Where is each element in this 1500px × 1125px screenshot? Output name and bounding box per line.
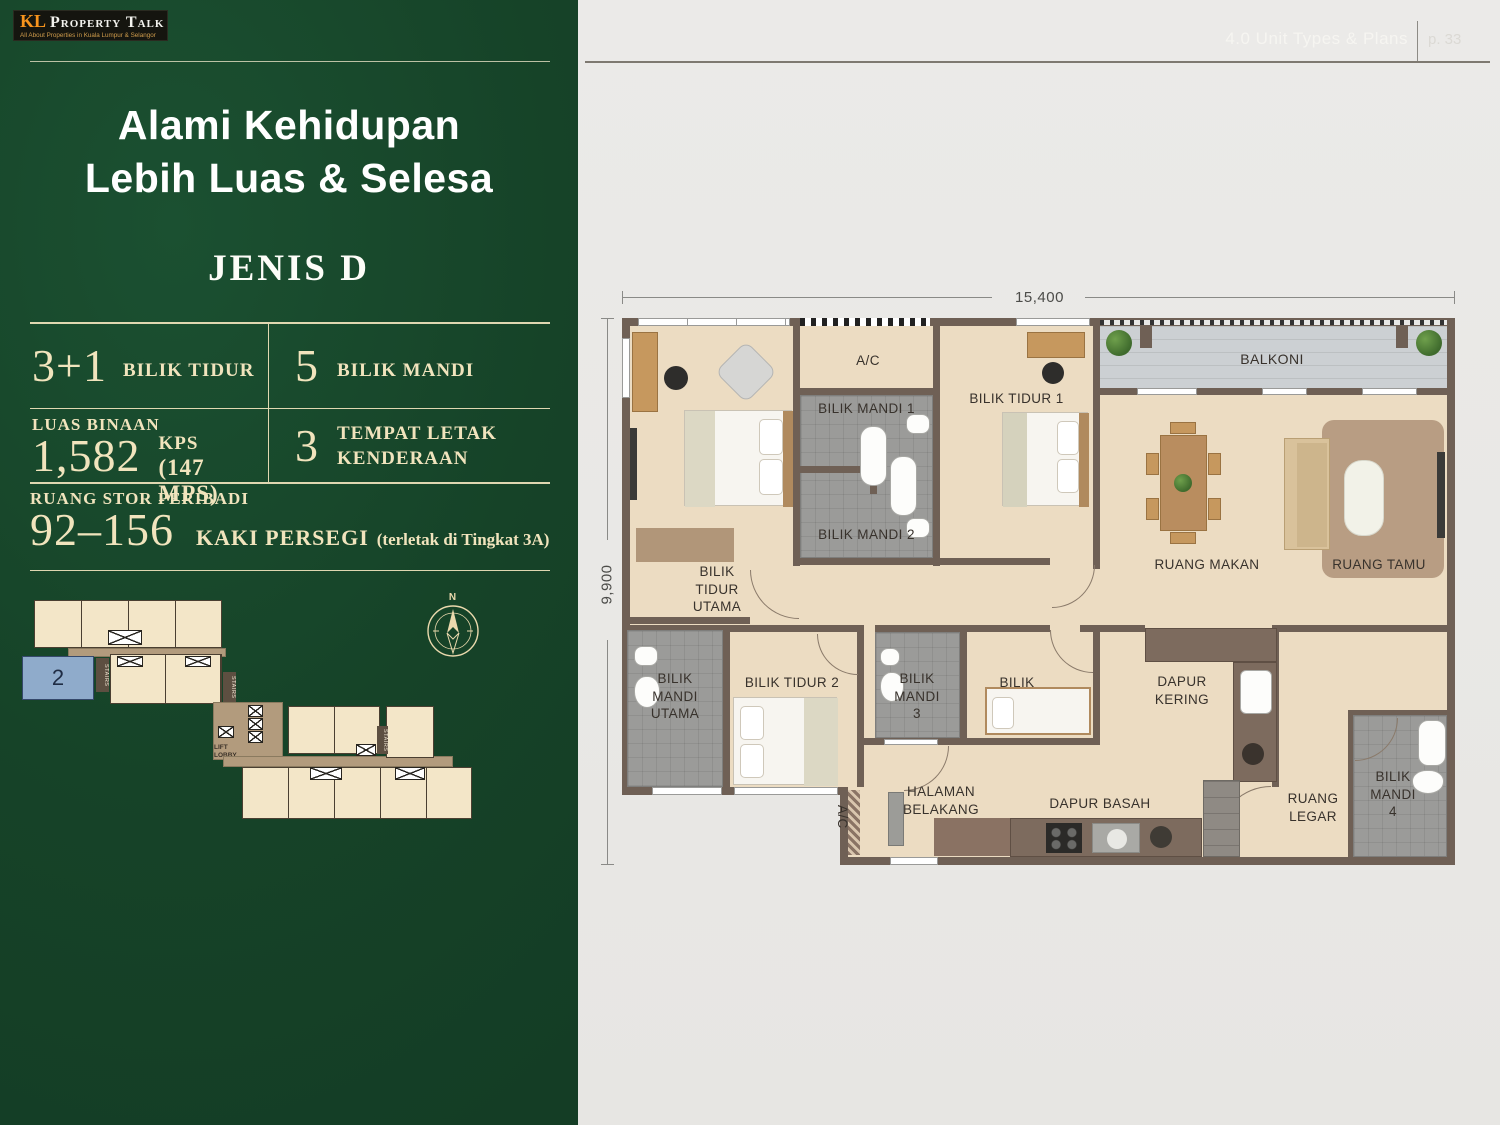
wall bbox=[960, 625, 967, 745]
chair bbox=[1208, 453, 1221, 475]
brand-logo-kl: KL bbox=[20, 11, 46, 31]
floor-plan: BALKONI A/C BILIK MANDI 1 BILIK MANDI 2 … bbox=[622, 318, 1455, 865]
sliding-door bbox=[1137, 388, 1197, 395]
bathrooms-value: 5 bbox=[295, 343, 319, 389]
bathtub bbox=[890, 456, 917, 516]
wall bbox=[793, 326, 800, 566]
brochure-page: KL Property Talk All About Properties in… bbox=[0, 0, 1500, 1125]
room-label-ac-bottom: A/C bbox=[833, 797, 851, 837]
wall bbox=[1277, 625, 1447, 632]
spec-bedrooms: 3+1 BILIK TIDUR bbox=[30, 324, 268, 408]
wall bbox=[630, 617, 750, 624]
lift-shaft-icon bbox=[248, 718, 263, 730]
balcony-column bbox=[1396, 326, 1408, 348]
compass-north-label: N bbox=[424, 592, 482, 603]
window bbox=[734, 787, 838, 795]
spec-built-up: LUAS BINAAN 1,582 KPS (147 MPS) bbox=[30, 409, 268, 482]
bathrooms-label: BILIK MANDI bbox=[337, 360, 474, 382]
plant-icon bbox=[1174, 474, 1192, 492]
coffee-table bbox=[1344, 460, 1384, 536]
room-label-bilik-tidur-utama: BILIK TIDUR UTAMA bbox=[657, 563, 777, 616]
window bbox=[884, 739, 938, 745]
wall bbox=[940, 558, 1050, 565]
sliding-door bbox=[1362, 388, 1417, 395]
rug bbox=[636, 528, 734, 562]
room-label-bilik-mandi-1: BILIK MANDI 1 bbox=[800, 400, 933, 418]
wall bbox=[933, 326, 940, 566]
room-label-bilik-mandi-3: BILIK MANDI 3 bbox=[877, 670, 957, 723]
bed-master bbox=[684, 410, 792, 506]
kitchen-sink bbox=[1240, 670, 1272, 714]
specs-rule bbox=[30, 570, 550, 572]
window bbox=[652, 787, 722, 795]
lift-shaft-icon bbox=[356, 744, 376, 756]
wall bbox=[800, 558, 940, 565]
wall bbox=[800, 466, 866, 473]
compass-icon bbox=[425, 603, 481, 659]
room-label-halaman-belakang: HALAMAN BELAKANG bbox=[876, 783, 1006, 818]
chair bbox=[664, 366, 688, 390]
brand-logo-subtitle: All About Properties in Kuala Lumpur & S… bbox=[20, 32, 161, 39]
chair bbox=[1146, 498, 1159, 520]
room-label-bilik-mandi-2: BILIK MANDI 2 bbox=[800, 526, 933, 544]
lift-shaft-icon bbox=[218, 726, 234, 738]
chair bbox=[1042, 362, 1064, 384]
bedrooms-value: 3+1 bbox=[32, 343, 107, 389]
bathtub bbox=[860, 426, 887, 486]
plant-icon bbox=[1106, 330, 1132, 356]
wall bbox=[857, 625, 864, 787]
room-label-ac-top: A/C bbox=[828, 352, 908, 370]
storage-note: (terletak di Tingkat 3A) bbox=[377, 530, 550, 550]
room-label-ruang-legar: RUANG LEGAR bbox=[1268, 790, 1358, 825]
dimension-width-value: 15,400 bbox=[997, 289, 1082, 306]
highlighted-unit: 2 bbox=[22, 656, 94, 700]
unit-type-title: JENIS D bbox=[0, 247, 578, 290]
dimension-height: 9,900 bbox=[598, 318, 616, 865]
built-up-unit: KPS bbox=[159, 433, 269, 455]
lift-shaft-icon bbox=[108, 630, 142, 645]
desk bbox=[1027, 332, 1085, 358]
lift-shaft-icon bbox=[395, 767, 425, 780]
wall bbox=[723, 625, 730, 787]
room-label-dapur-basah: DAPUR BASAH bbox=[1015, 795, 1185, 813]
left-header-divider bbox=[30, 61, 550, 62]
ac-louvre bbox=[800, 318, 930, 326]
chair bbox=[1146, 453, 1159, 475]
parking-label: TEMPAT LETAK KENDERAAN bbox=[337, 421, 497, 471]
balcony-column bbox=[1140, 326, 1152, 348]
sink bbox=[634, 646, 658, 666]
wall bbox=[1093, 625, 1100, 745]
specs-table: 3+1 BILIK TIDUR 5 BILIK MANDI LUAS BINAA… bbox=[30, 322, 550, 571]
balcony-railing bbox=[1100, 320, 1447, 325]
bed-bedroom-2 bbox=[733, 697, 837, 785]
left-panel: KL Property Talk All About Properties in… bbox=[0, 0, 578, 1125]
headline-line1: Alami Kehidupan bbox=[0, 99, 578, 152]
sofa bbox=[1284, 438, 1330, 550]
bedrooms-label: BILIK TIDUR bbox=[123, 360, 255, 382]
headline: Alami Kehidupan Lebih Luas & Selesa bbox=[0, 99, 578, 205]
dimension-width: 15,400 bbox=[622, 288, 1455, 306]
lift-shaft-icon bbox=[310, 767, 342, 780]
bed-bedroom-1 bbox=[1002, 412, 1088, 506]
sink bbox=[880, 648, 900, 666]
lift-shaft-icon bbox=[117, 656, 143, 667]
room-label-bilik-tidur-1: BILIK TIDUR 1 bbox=[940, 390, 1093, 408]
room-label-bilik: BILIK bbox=[972, 674, 1062, 692]
bed-single bbox=[985, 687, 1091, 735]
window bbox=[638, 318, 790, 326]
bin bbox=[1242, 743, 1264, 765]
dimension-height-value: 9,900 bbox=[599, 546, 616, 624]
brand-logo-title: KL Property Talk bbox=[20, 13, 161, 31]
brand-logo-name: Property Talk bbox=[50, 14, 164, 31]
site-key-plan: 2 STAIRS STAIRS LIFT LOBBY STAIRS bbox=[20, 598, 485, 848]
spec-bathrooms: 5 BILIK MANDI bbox=[268, 324, 550, 408]
built-up-value: 1,582 bbox=[32, 433, 141, 479]
parking-value: 3 bbox=[295, 423, 319, 469]
room-label-bilik-mandi-utama: BILIK MANDI UTAMA bbox=[629, 670, 721, 723]
specs-row-beds-baths: 3+1 BILIK TIDUR 5 BILIK MANDI bbox=[30, 324, 550, 408]
window bbox=[1016, 318, 1090, 326]
specs-row-area-parking: LUAS BINAAN 1,582 KPS (147 MPS) 3 TEMPAT… bbox=[30, 409, 550, 482]
tv bbox=[1437, 452, 1445, 538]
room-label-ruang-tamu: RUANG TAMU bbox=[1299, 556, 1459, 574]
wall bbox=[793, 388, 940, 395]
header-divider bbox=[1417, 21, 1418, 61]
section-title: 4.0 Unit Types & Plans bbox=[1150, 29, 1408, 49]
chair bbox=[1170, 532, 1196, 544]
headline-line2: Lebih Luas & Selesa bbox=[0, 152, 578, 205]
brand-logo: KL Property Talk All About Properties in… bbox=[13, 10, 168, 41]
stairs-box: STAIRS bbox=[377, 726, 388, 754]
kitchen-sink bbox=[1092, 823, 1140, 853]
chair bbox=[1170, 422, 1196, 434]
spec-storage: RUANG STOR PERIBADI 92–156 KAKI PERSEGI … bbox=[30, 484, 550, 570]
header-rule bbox=[585, 61, 1490, 63]
site-unit bbox=[386, 706, 434, 758]
sliding-door bbox=[1262, 388, 1307, 395]
bathtub bbox=[1418, 720, 1446, 766]
stairs-box: STAIRS bbox=[96, 658, 109, 692]
cabinet bbox=[1203, 780, 1240, 857]
room-label-bilik-mandi-4: BILIK MANDI 4 bbox=[1353, 768, 1433, 821]
lift-shaft-icon bbox=[248, 731, 263, 743]
page-number: p. 33 bbox=[1428, 31, 1490, 48]
lift-shaft-icon bbox=[185, 656, 211, 667]
storage-unit: KAKI PERSEGI bbox=[196, 525, 369, 551]
compass: N bbox=[424, 592, 482, 662]
back-door bbox=[890, 857, 938, 865]
stove bbox=[1046, 823, 1082, 853]
pot bbox=[1150, 826, 1172, 848]
plant-icon bbox=[1416, 330, 1442, 356]
desk bbox=[632, 332, 658, 412]
room-label-ruang-makan: RUANG MAKAN bbox=[1127, 556, 1287, 574]
room-label-dapur-kering: DAPUR KERING bbox=[1127, 673, 1237, 708]
room-label-bilik-tidur-2: BILIK TIDUR 2 bbox=[732, 674, 852, 692]
kitchen-counter bbox=[1145, 628, 1277, 662]
chair bbox=[1208, 498, 1221, 520]
stairs-box: STAIRS bbox=[223, 672, 236, 702]
spec-parking: 3 TEMPAT LETAK KENDERAAN bbox=[268, 409, 550, 482]
tv bbox=[630, 428, 637, 500]
lift-shaft-icon bbox=[248, 705, 263, 717]
room-label-balkoni: BALKONI bbox=[1212, 350, 1332, 368]
wall bbox=[1093, 326, 1100, 569]
site-units-bottom-row bbox=[242, 767, 472, 819]
wall bbox=[1447, 318, 1455, 865]
storage-value: 92–156 bbox=[30, 507, 174, 553]
highlighted-unit-number: 2 bbox=[52, 665, 64, 691]
window bbox=[622, 338, 630, 398]
